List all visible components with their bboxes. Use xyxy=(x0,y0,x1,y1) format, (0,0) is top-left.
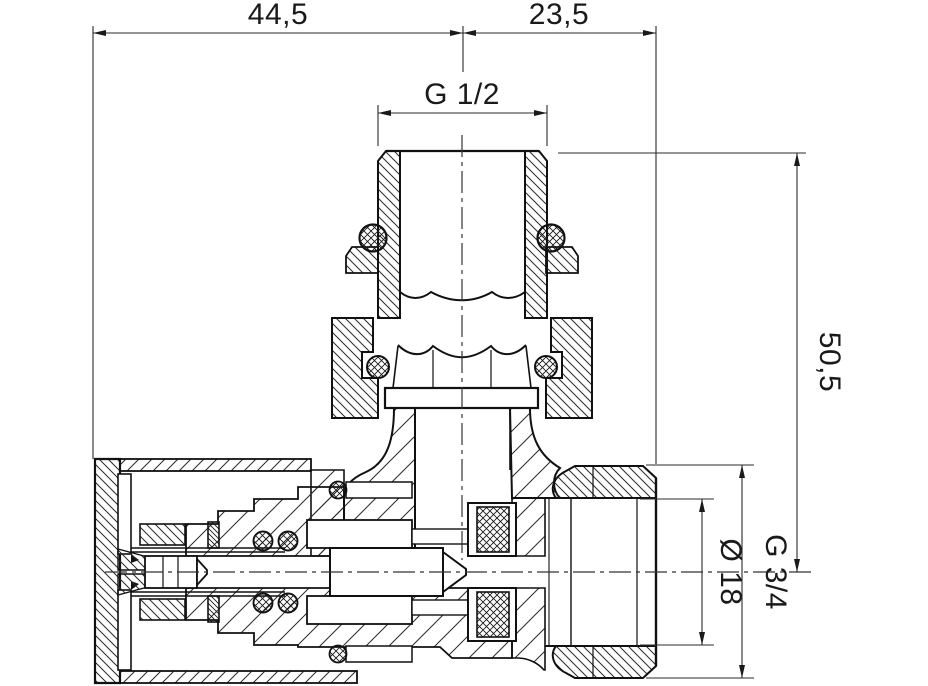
o-ring xyxy=(254,532,273,551)
seat-seal xyxy=(477,592,509,637)
cap-inner-wall xyxy=(118,474,131,554)
cap-inner-wall xyxy=(118,590,131,670)
o-ring xyxy=(330,646,347,663)
o-ring xyxy=(279,594,298,613)
dim-thread-right: G 3/4 xyxy=(759,534,792,610)
o-ring xyxy=(367,356,389,378)
o-ring xyxy=(254,594,273,613)
gland-bar xyxy=(208,596,219,622)
gland-block xyxy=(307,596,412,624)
o-ring xyxy=(279,532,298,551)
drawing-canvas: 44,5 23,5 G 1/2 50,5 Ø 18 G 3/4 xyxy=(0,0,928,686)
o-ring xyxy=(330,482,347,499)
dim-width-left: 44,5 xyxy=(248,0,308,31)
dim-bore-diameter: Ø 18 xyxy=(714,538,747,605)
o-ring xyxy=(360,225,387,252)
centerlines xyxy=(105,135,812,572)
seat-seal xyxy=(477,507,509,552)
gland-bar xyxy=(208,522,219,548)
o-ring xyxy=(535,356,557,378)
dim-width-right: 23,5 xyxy=(529,0,589,31)
dim-height-right: 50,5 xyxy=(813,332,846,392)
o-ring xyxy=(538,225,565,252)
technical-drawing: 44,5 23,5 G 1/2 50,5 Ø 18 G 3/4 xyxy=(0,0,928,686)
dim-thread-top: G 1/2 xyxy=(424,78,500,111)
gland-block xyxy=(307,520,412,548)
